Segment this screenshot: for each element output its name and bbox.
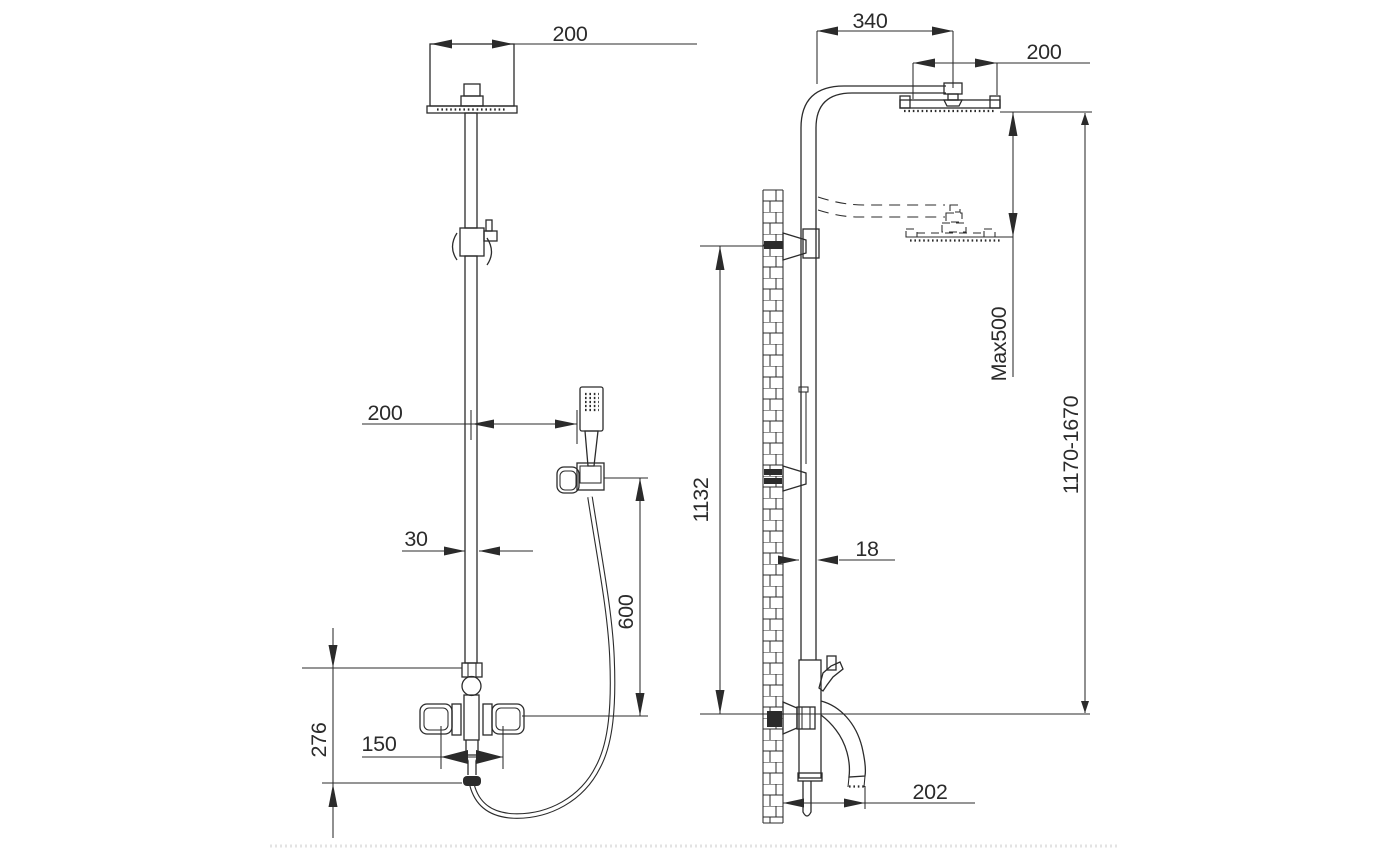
side-view: 340 200 Max500 1170-1670 1132: [689, 9, 1092, 823]
spout-curve: [821, 701, 865, 777]
shower-column: [453, 113, 498, 663]
dim-side-max-adjust: Max500: [987, 112, 1092, 381]
height-adjust-clamp: [453, 220, 498, 265]
dim-front-column-width: 30: [402, 527, 533, 556]
dim-label-front-column-width: 30: [404, 527, 428, 551]
dim-label-front-hose-height: 600: [614, 594, 638, 629]
dim-wall-height-reference-lines: [700, 246, 1090, 714]
dim-side-wall-height: 1132: [689, 246, 725, 714]
dim-label-side-head-depth: 200: [1027, 40, 1062, 64]
dim-label-side-total-height: 1170-1670: [1059, 395, 1083, 494]
dim-label-front-handshower-offset: 200: [368, 401, 403, 425]
dim-label-front-head-width: 200: [553, 22, 588, 46]
aerator-tip: [463, 776, 481, 786]
hand-shower: [557, 387, 604, 493]
hand-shower-spray-dots: [585, 394, 599, 410]
overhead-shower-head: [427, 44, 517, 113]
wall-section: [763, 190, 783, 823]
front-view: 200 200 30 600 276: [302, 22, 697, 838]
shower-system-technical-drawing: 200 200 30 600 276: [0, 0, 1400, 850]
brick-hatch: [763, 190, 783, 823]
left-handle: [420, 704, 452, 734]
mixer-front: [420, 663, 524, 786]
dim-label-side-pipe-depth: 18: [855, 537, 879, 561]
dim-label-side-arm-length: 340: [853, 9, 888, 33]
dim-label-side-spout-reach: 202: [913, 780, 948, 804]
shower-hose: [472, 497, 613, 816]
riser-pipe-and-arm: [801, 86, 946, 660]
dim-side-spout-reach: 202: [783, 780, 975, 809]
overhead-shower-head-side: [900, 83, 1000, 111]
dim-front-handshower-offset: 200: [362, 401, 577, 444]
dim-label-side-wall-height: 1132: [689, 477, 713, 522]
dim-label-front-spout-height: 276: [307, 722, 331, 757]
dim-side-head-depth: 200: [913, 40, 1090, 99]
right-handle: [492, 704, 524, 734]
hose-end-side: [803, 781, 811, 816]
hand-shower-holder: [557, 463, 604, 493]
dim-front-hose-height: 600: [522, 478, 648, 716]
dim-side-pipe-depth: 18: [778, 537, 895, 565]
mixer-lever: [819, 662, 843, 691]
dim-front-handle-span: 150: [362, 726, 503, 769]
dim-label-side-max-adjust: Max500: [987, 306, 1011, 381]
dim-label-front-handle-span: 150: [362, 732, 397, 756]
dim-side-arm-length: 340: [817, 9, 953, 88]
dim-side-total-height: 1170-1670: [1059, 113, 1089, 713]
lowered-head-dashed-position: [818, 197, 1013, 241]
